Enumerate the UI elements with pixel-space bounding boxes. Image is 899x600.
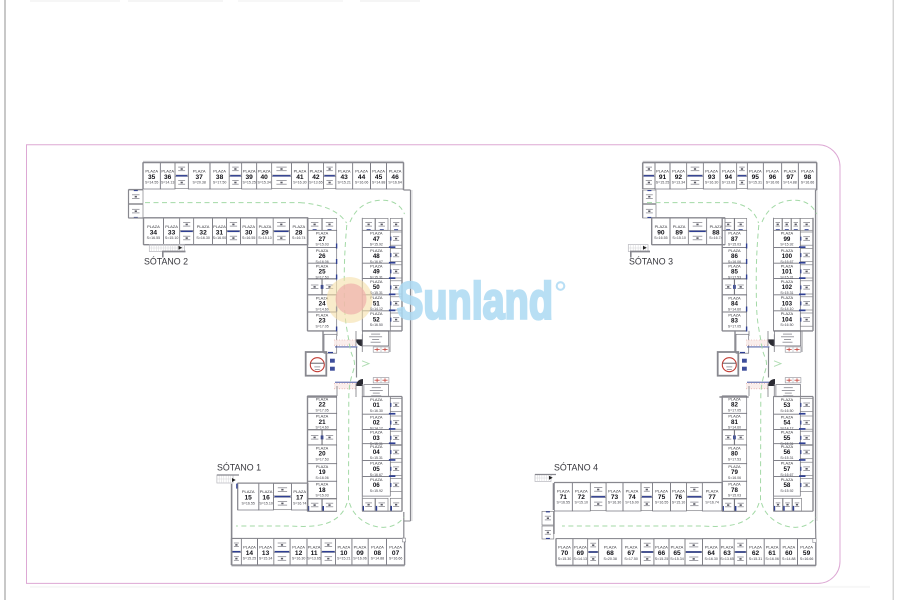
svg-text:PLAZA: PLAZA [655, 224, 668, 229]
svg-text:S=16.50: S=16.50 [780, 409, 793, 413]
svg-text:PLAZA: PLAZA [213, 169, 226, 174]
svg-text:S=15.92: S=15.92 [370, 243, 383, 247]
svg-text:S=16.30: S=16.30 [196, 236, 210, 240]
svg-text:PLAZA: PLAZA [800, 545, 813, 550]
svg-text:S=16.50: S=16.50 [780, 323, 793, 327]
svg-text:S=15.31: S=15.31 [749, 557, 763, 561]
svg-text:S=16.06: S=16.06 [353, 557, 367, 561]
svg-text:S=15.10: S=15.10 [672, 501, 686, 505]
svg-text:S=15.34: S=15.34 [670, 557, 684, 561]
svg-text:S=14.13: S=14.13 [161, 181, 175, 185]
svg-text:S=17.05: S=17.05 [728, 324, 741, 328]
svg-text:S=14.13: S=14.13 [574, 557, 588, 561]
svg-text:S=15.92: S=15.92 [780, 489, 793, 493]
svg-text:S=15.25: S=15.25 [655, 557, 669, 561]
svg-text:S=15.10: S=15.10 [259, 501, 273, 505]
svg-text:S=13.65: S=13.65 [722, 181, 736, 185]
svg-text:PLAZA: PLAZA [656, 169, 669, 174]
svg-text:S=16.06: S=16.06 [355, 181, 369, 185]
svg-text:S=16.06: S=16.06 [766, 181, 780, 185]
svg-text:S=15.34: S=15.34 [257, 181, 271, 185]
svg-text:PLAZA: PLAZA [161, 169, 174, 174]
svg-text:S=16.00: S=16.00 [625, 501, 639, 505]
svg-text:S=15.03: S=15.03 [316, 243, 329, 247]
svg-text:S=13.65: S=13.65 [720, 557, 734, 561]
svg-text:PLAZA: PLAZA [338, 169, 351, 174]
svg-text:S=16.06: S=16.06 [316, 476, 329, 480]
svg-text:PLAZA: PLAZA [710, 224, 723, 229]
svg-text:S=14.60: S=14.60 [316, 426, 329, 430]
svg-text:PLAZA: PLAZA [292, 545, 305, 550]
svg-text:S=16.55: S=16.55 [557, 501, 571, 505]
svg-text:PLAZA: PLAZA [259, 224, 272, 229]
svg-text:S=13.34: S=13.34 [672, 181, 686, 185]
svg-text:S=17.50: S=17.50 [624, 557, 638, 561]
svg-text:S=15.31: S=15.31 [370, 456, 383, 460]
svg-text:PLAZA: PLAZA [672, 489, 685, 494]
svg-text:S=14.60: S=14.60 [728, 426, 741, 430]
svg-text:PLAZA: PLAZA [557, 489, 570, 494]
svg-text:S=15.21: S=15.21 [337, 557, 351, 561]
svg-text:PLAZA: PLAZA [371, 545, 384, 550]
svg-text:S=16.30: S=16.30 [608, 501, 622, 505]
svg-text:PLAZA: PLAZA [294, 169, 307, 174]
svg-text:S=16.30: S=16.30 [292, 557, 306, 561]
svg-text:S=16.74: S=16.74 [292, 236, 306, 240]
svg-text:PLAZA: PLAZA [193, 169, 206, 174]
svg-text:S=16.30: S=16.30 [705, 181, 719, 185]
svg-text:S=16.06: S=16.06 [728, 476, 741, 480]
svg-text:S=17.53: S=17.53 [728, 457, 741, 461]
svg-text:Sunland: Sunland [397, 273, 553, 331]
svg-text:S=16.64: S=16.64 [388, 181, 402, 185]
svg-text:PLAZA: PLAZA [574, 545, 587, 550]
svg-text:SÓTANO 2: SÓTANO 2 [144, 257, 188, 267]
svg-text:PLAZA: PLAZA [389, 169, 402, 174]
svg-text:PLAZA: PLAZA [258, 169, 271, 174]
svg-text:S=16.66: S=16.66 [801, 181, 815, 185]
svg-text:S=14.88: S=14.88 [782, 557, 796, 561]
svg-text:S=16.55: S=16.55 [147, 236, 161, 240]
svg-text:S=14.60: S=14.60 [728, 307, 741, 311]
svg-text:PLAZA: PLAZA [243, 169, 256, 174]
svg-text:S=17.50: S=17.50 [213, 181, 227, 185]
svg-text:PLAZA: PLAZA [784, 169, 797, 174]
svg-text:S=15.10: S=15.10 [165, 236, 179, 240]
svg-text:S=15.25: S=15.25 [242, 181, 256, 185]
svg-text:S=16.06: S=16.06 [765, 557, 779, 561]
svg-text:S=15.03: S=15.03 [728, 494, 741, 498]
svg-text:S=16.66: S=16.66 [800, 557, 814, 561]
svg-text:S=15.92: S=15.92 [370, 489, 383, 493]
svg-text:PLAZA: PLAZA [608, 489, 621, 494]
svg-text:PLAZA: PLAZA [354, 545, 367, 550]
svg-text:PLAZA: PLAZA [260, 489, 273, 494]
svg-text:PLAZA: PLAZA [292, 224, 305, 229]
svg-text:S=13.65: S=13.65 [307, 557, 321, 561]
svg-text:PLAZA: PLAZA [165, 224, 178, 229]
svg-text:S=16.74: S=16.74 [709, 236, 723, 240]
svg-text:PLAZA: PLAZA [671, 545, 684, 550]
svg-text:PLAZA: PLAZA [558, 545, 571, 550]
svg-text:PLAZA: PLAZA [706, 489, 719, 494]
svg-text:PLAZA: PLAZA [197, 224, 210, 229]
svg-text:PLAZA: PLAZA [721, 545, 734, 550]
svg-text:S=14.88: S=14.88 [371, 557, 385, 561]
svg-text:S=16.30: S=16.30 [370, 409, 383, 413]
svg-text:PLAZA: PLAZA [801, 169, 814, 174]
svg-text:PLAZA: PLAZA [766, 169, 779, 174]
svg-text:PLAZA: PLAZA [673, 224, 686, 229]
svg-text:S=14.88: S=14.88 [783, 181, 797, 185]
svg-text:SÓTANO 4: SÓTANO 4 [554, 463, 598, 473]
svg-text:S=13.65: S=13.65 [309, 181, 323, 185]
svg-text:S=15.10: S=15.10 [672, 236, 686, 240]
svg-text:PLAZA: PLAZA [308, 545, 321, 550]
svg-text:S=14.60: S=14.60 [316, 307, 329, 311]
svg-text:PLAZA: PLAZA [655, 545, 668, 550]
svg-text:S=17.05: S=17.05 [728, 408, 741, 412]
svg-text:S=15.31: S=15.31 [780, 456, 793, 460]
svg-text:S=16.55: S=16.55 [241, 501, 255, 505]
svg-text:S=16.50: S=16.50 [370, 323, 383, 327]
svg-text:PLAZA: PLAZA [242, 224, 255, 229]
svg-text:PLAZA: PLAZA [749, 169, 762, 174]
svg-text:PLAZA: PLAZA [626, 489, 639, 494]
svg-text:PLAZA: PLAZA [705, 169, 718, 174]
svg-text:PLAZA: PLAZA [575, 489, 588, 494]
svg-text:PLAZA: PLAZA [243, 545, 256, 550]
svg-text:PLAZA: PLAZA [259, 545, 272, 550]
svg-text:PLAZA: PLAZA [147, 224, 160, 229]
svg-text:S=15.25: S=15.25 [243, 557, 257, 561]
svg-text:S=15.21: S=15.21 [337, 181, 351, 185]
svg-text:S=17.05: S=17.05 [316, 408, 329, 412]
svg-text:S=17.05: S=17.05 [316, 324, 329, 328]
svg-text:S=15.25: S=15.25 [656, 181, 670, 185]
svg-text:S=16.55: S=16.55 [655, 501, 669, 505]
svg-text:S=14.88: S=14.88 [372, 181, 386, 185]
svg-text:S=16.55: S=16.55 [242, 236, 256, 240]
svg-text:PLAZA: PLAZA [337, 545, 350, 550]
svg-text:PLAZA: PLAZA [389, 545, 402, 550]
svg-text:PLAZA: PLAZA [355, 169, 368, 174]
svg-text:S=16.66: S=16.66 [389, 557, 403, 561]
svg-text:PLAZA: PLAZA [213, 224, 226, 229]
svg-text:S=15.92: S=15.92 [780, 243, 793, 247]
svg-text:S=15.31: S=15.31 [749, 181, 763, 185]
svg-text:PLAZA: PLAZA [145, 169, 158, 174]
svg-text:S=15.30: S=15.30 [558, 557, 572, 561]
svg-text:PLAZA: PLAZA [310, 169, 323, 174]
svg-text:SÓTANO 1: SÓTANO 1 [217, 463, 261, 473]
svg-text:PLAZA: PLAZA [604, 545, 617, 550]
svg-text:PLAZA: PLAZA [722, 169, 735, 174]
svg-text:S=16.74: S=16.74 [705, 501, 719, 505]
svg-text:S=16.30: S=16.30 [293, 181, 307, 185]
svg-text:PLAZA: PLAZA [782, 545, 795, 550]
svg-text:S=15.03: S=15.03 [316, 494, 329, 498]
svg-text:PLAZA: PLAZA [372, 169, 385, 174]
svg-text:PLAZA: PLAZA [655, 489, 668, 494]
svg-text:PLAZA: PLAZA [766, 545, 779, 550]
svg-text:S=15.10: S=15.10 [575, 501, 589, 505]
svg-text:S=15.10: S=15.10 [258, 236, 272, 240]
svg-text:S=17.53: S=17.53 [316, 457, 329, 461]
svg-text:S=15.34: S=15.34 [259, 557, 273, 561]
svg-text:PLAZA: PLAZA [242, 489, 255, 494]
svg-text:PLAZA: PLAZA [293, 489, 306, 494]
svg-text:S=16.74: S=16.74 [293, 501, 307, 505]
svg-text:SÓTANO 3: SÓTANO 3 [629, 257, 673, 267]
svg-text:S=15.03: S=15.03 [728, 243, 741, 247]
svg-text:S=20.38: S=20.38 [192, 181, 206, 185]
svg-text:PLAZA: PLAZA [705, 545, 718, 550]
svg-text:PLAZA: PLAZA [625, 545, 638, 550]
svg-text:S=20.38: S=20.38 [603, 557, 617, 561]
svg-text:S=14.55: S=14.55 [145, 181, 159, 185]
svg-text:S=16.30: S=16.30 [704, 557, 718, 561]
svg-text:PLAZA: PLAZA [749, 545, 762, 550]
svg-text:PLAZA: PLAZA [672, 169, 685, 174]
svg-text:S=16.55: S=16.55 [654, 236, 668, 240]
svg-text:S=16.00: S=16.00 [213, 236, 227, 240]
